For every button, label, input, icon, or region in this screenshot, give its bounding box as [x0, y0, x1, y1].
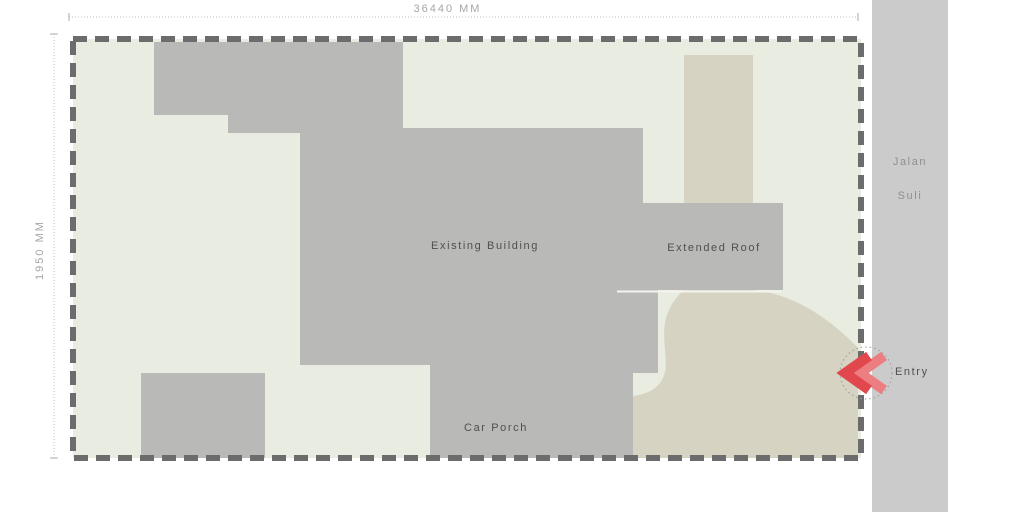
- dimension-line-left: [50, 34, 58, 458]
- label-extended-roof: Extended Roof: [634, 242, 794, 254]
- road-name: Jalan Suli: [872, 137, 948, 205]
- dimension-label-left: 1950 MM: [34, 180, 50, 320]
- site-plan: 36440 MM 1950 MM Existing Building Exten…: [0, 0, 1024, 512]
- entry-label: Entry: [895, 366, 955, 378]
- label-car-porch: Car Porch: [421, 422, 571, 434]
- road-name-line1: Jalan: [893, 156, 927, 168]
- road-name-line2: Suli: [898, 190, 923, 202]
- annex-block-shape: [141, 373, 265, 458]
- dimension-label-top: 36440 MM: [330, 3, 565, 15]
- road-strip: [872, 0, 948, 512]
- label-existing-building: Existing Building: [385, 240, 585, 252]
- site-plan-canvas: [0, 0, 1024, 512]
